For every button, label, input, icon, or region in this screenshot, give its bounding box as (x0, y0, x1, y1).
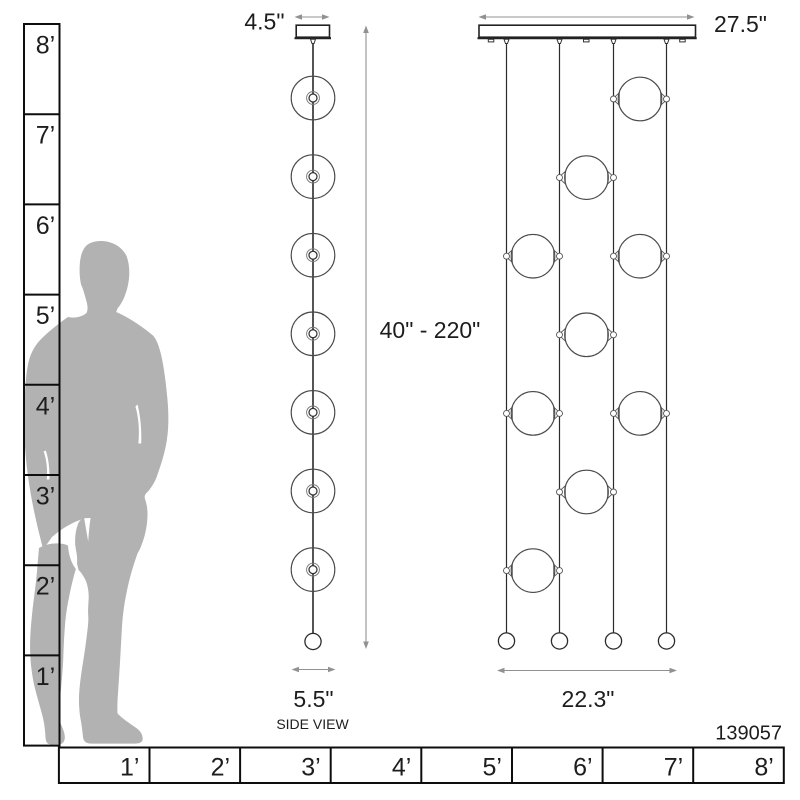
svg-text:7’: 7’ (664, 754, 683, 782)
svg-text:4’: 4’ (36, 392, 55, 420)
svg-text:22.3": 22.3" (562, 686, 615, 712)
svg-text:139057: 139057 (715, 723, 782, 745)
svg-text:27.5": 27.5" (714, 11, 767, 37)
svg-text:8’: 8’ (754, 754, 773, 782)
svg-text:40" - 220": 40" - 220" (380, 317, 481, 343)
svg-text:5.5": 5.5" (293, 686, 333, 712)
svg-text:2’: 2’ (36, 573, 55, 601)
svg-text:6’: 6’ (36, 212, 55, 240)
svg-text:5’: 5’ (36, 302, 55, 330)
svg-text:2’: 2’ (211, 754, 230, 782)
svg-text:8’: 8’ (36, 32, 55, 60)
svg-text:3’: 3’ (301, 754, 320, 782)
svg-text:3’: 3’ (36, 483, 55, 511)
svg-text:7’: 7’ (36, 122, 55, 150)
svg-text:5’: 5’ (483, 754, 502, 782)
svg-text:6’: 6’ (573, 754, 592, 782)
svg-text:4’: 4’ (392, 754, 411, 782)
svg-text:1’: 1’ (36, 663, 55, 691)
svg-text:1’: 1’ (120, 754, 139, 782)
svg-text:SIDE VIEW: SIDE VIEW (276, 716, 349, 732)
svg-text:4.5": 4.5" (244, 9, 284, 35)
